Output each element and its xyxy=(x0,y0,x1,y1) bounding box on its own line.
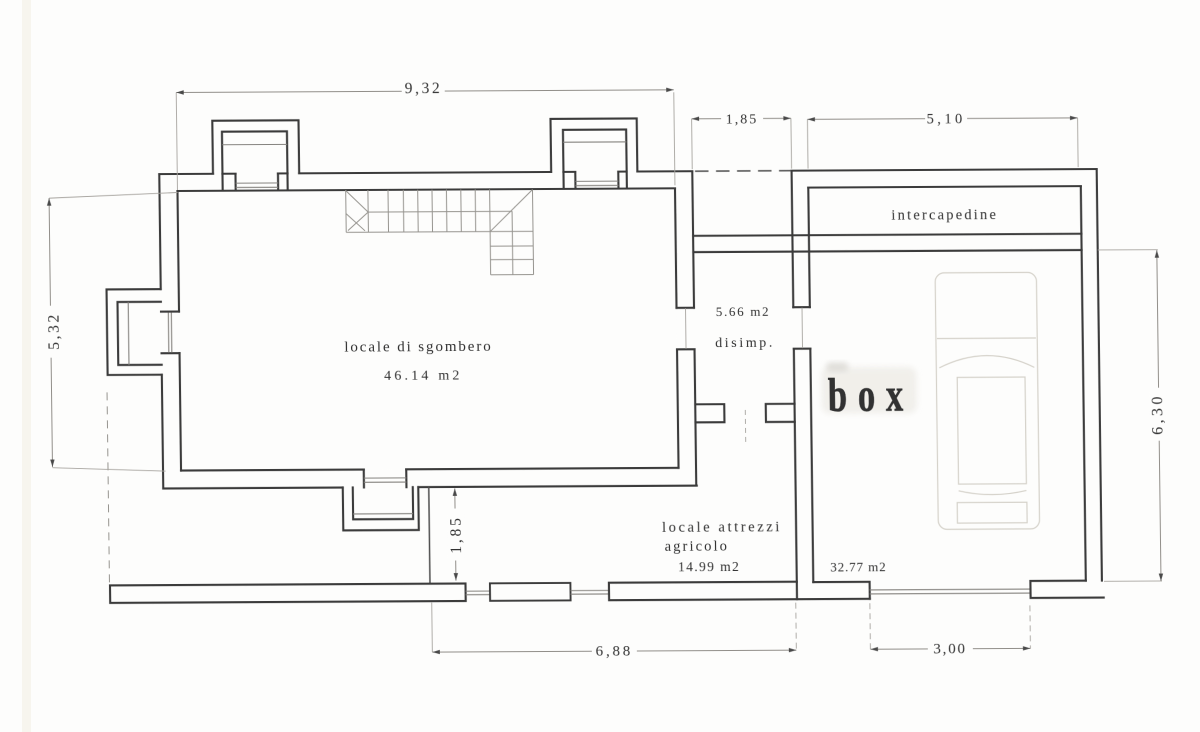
svg-text:intercapedine: intercapedine xyxy=(891,207,998,224)
svg-text:6,30: 6,30 xyxy=(1149,393,1167,435)
svg-text:locale attrezzi: locale attrezzi xyxy=(662,519,782,536)
svg-text:6,88: 6,88 xyxy=(596,644,634,660)
svg-text:agricolo: agricolo xyxy=(665,539,730,555)
svg-text:box: box xyxy=(827,369,914,422)
svg-text:46.14 m2: 46.14 m2 xyxy=(384,368,463,383)
svg-text:32.77 m2: 32.77 m2 xyxy=(830,559,887,574)
svg-text:5,10: 5,10 xyxy=(927,111,966,127)
svg-text:14.99 m2: 14.99 m2 xyxy=(678,559,740,574)
svg-text:5,32: 5,32 xyxy=(46,312,63,350)
svg-text:9,32: 9,32 xyxy=(405,80,443,97)
svg-text:1,85: 1,85 xyxy=(448,515,465,553)
svg-text:3,00: 3,00 xyxy=(933,641,967,657)
svg-text:1,85: 1,85 xyxy=(726,112,759,127)
svg-text:5.66 m2: 5.66 m2 xyxy=(716,304,771,319)
svg-text:disimp.: disimp. xyxy=(715,336,775,351)
svg-text:locale di sgombero: locale di sgombero xyxy=(344,339,493,356)
